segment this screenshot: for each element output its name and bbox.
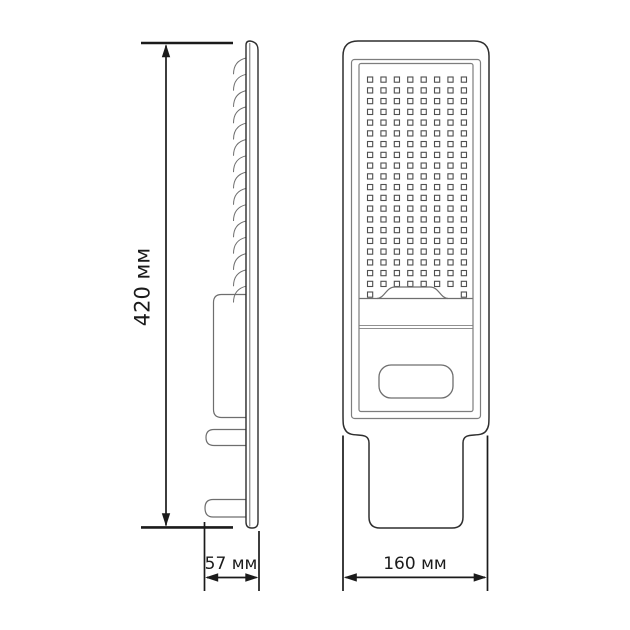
technical-drawing-page: 420 мм 57 мм 160 мм xyxy=(0,0,630,630)
dimension-label-height: 420 мм xyxy=(131,248,155,326)
led-square xyxy=(408,120,413,125)
led-square xyxy=(448,88,453,93)
led-square xyxy=(368,99,373,104)
led-square xyxy=(448,77,453,82)
heatsink-fin xyxy=(234,270,247,286)
led-square xyxy=(381,88,386,93)
led-square xyxy=(408,238,413,243)
led-square xyxy=(408,99,413,104)
heatsink-fin xyxy=(234,107,247,123)
led-square xyxy=(421,195,426,200)
arrowhead-down xyxy=(162,513,170,526)
led-square xyxy=(435,185,440,190)
led-square xyxy=(448,228,453,233)
led-square xyxy=(421,77,426,82)
led-square xyxy=(448,120,453,125)
led-square xyxy=(368,142,373,147)
led-square xyxy=(461,217,466,222)
led-square xyxy=(408,142,413,147)
led-square xyxy=(368,174,373,179)
led-square xyxy=(368,152,373,157)
led-square xyxy=(394,206,399,211)
led-square xyxy=(435,228,440,233)
led-square xyxy=(394,142,399,147)
led-square xyxy=(381,206,386,211)
led-square xyxy=(448,206,453,211)
led-square xyxy=(421,152,426,157)
led-square xyxy=(394,131,399,136)
heatsink-fin xyxy=(234,172,247,188)
led-square xyxy=(421,163,426,168)
led-square xyxy=(461,152,466,157)
heatsink-fin xyxy=(234,74,247,90)
led-square xyxy=(421,174,426,179)
led-square xyxy=(408,217,413,222)
led-square xyxy=(435,217,440,222)
led-square xyxy=(461,99,466,104)
led-square xyxy=(381,174,386,179)
led-square xyxy=(435,195,440,200)
led-square xyxy=(435,249,440,254)
led-square xyxy=(394,249,399,254)
led-square xyxy=(381,120,386,125)
heatsink-fin xyxy=(234,91,247,107)
technical-drawing-svg: 420 мм 57 мм 160 мм xyxy=(0,0,630,630)
led-square xyxy=(461,228,466,233)
led-square xyxy=(394,217,399,222)
led-square xyxy=(381,152,386,157)
led-square xyxy=(461,271,466,276)
led-square xyxy=(461,249,466,254)
led-square xyxy=(368,163,373,168)
led-square xyxy=(461,238,466,243)
led-square xyxy=(461,131,466,136)
led-square xyxy=(435,163,440,168)
led-square xyxy=(461,120,466,125)
heatsink-fin xyxy=(234,237,247,253)
led-square xyxy=(461,77,466,82)
led-square xyxy=(421,228,426,233)
led-square xyxy=(421,281,426,286)
led-square xyxy=(368,195,373,200)
led-square xyxy=(368,217,373,222)
led-square xyxy=(461,292,466,297)
led-square xyxy=(435,109,440,114)
led-square xyxy=(448,271,453,276)
led-square xyxy=(368,109,373,114)
led-square xyxy=(408,109,413,114)
side-clamp-tab-upper xyxy=(206,430,246,446)
led-square xyxy=(435,152,440,157)
led-square xyxy=(368,185,373,190)
dimension-label-side-width: 57 мм xyxy=(205,554,258,574)
led-square xyxy=(448,260,453,265)
led-square xyxy=(394,195,399,200)
led-square xyxy=(421,99,426,104)
led-square xyxy=(408,249,413,254)
led-square xyxy=(408,185,413,190)
dimension-side-width-57: 57 мм xyxy=(205,522,260,591)
led-square xyxy=(408,271,413,276)
side-body-profile xyxy=(246,41,258,528)
led-square xyxy=(368,228,373,233)
led-square xyxy=(368,88,373,93)
led-square xyxy=(461,174,466,179)
side-view xyxy=(205,41,258,528)
led-square xyxy=(461,142,466,147)
led-square xyxy=(381,163,386,168)
led-square xyxy=(421,142,426,147)
led-square xyxy=(368,77,373,82)
front-housing-outline xyxy=(343,41,489,528)
led-square xyxy=(394,281,399,286)
led-square xyxy=(381,249,386,254)
arrowhead-left xyxy=(344,573,357,581)
led-square xyxy=(448,238,453,243)
led-square xyxy=(381,131,386,136)
led-square xyxy=(381,195,386,200)
led-square xyxy=(461,109,466,114)
led-square xyxy=(461,281,466,286)
led-square xyxy=(408,77,413,82)
led-square xyxy=(394,77,399,82)
heatsink-fin xyxy=(234,123,247,139)
led-square xyxy=(435,99,440,104)
led-square xyxy=(421,238,426,243)
led-square xyxy=(381,217,386,222)
led-square xyxy=(448,142,453,147)
heatsink-fin xyxy=(234,188,247,204)
led-square xyxy=(421,131,426,136)
led-square xyxy=(394,174,399,179)
led-square xyxy=(421,88,426,93)
led-square xyxy=(448,152,453,157)
led-square xyxy=(368,281,373,286)
led-square xyxy=(448,249,453,254)
heatsink-fin xyxy=(234,58,247,74)
led-square xyxy=(408,206,413,211)
led-square xyxy=(408,174,413,179)
led-square xyxy=(394,228,399,233)
arrowhead-up xyxy=(162,44,170,57)
led-square xyxy=(394,185,399,190)
led-square xyxy=(435,271,440,276)
led-square xyxy=(435,120,440,125)
led-square xyxy=(394,99,399,104)
led-square xyxy=(448,217,453,222)
led-square xyxy=(368,260,373,265)
led-square xyxy=(421,206,426,211)
heatsink-fins xyxy=(234,58,247,303)
heatsink-fin xyxy=(234,156,247,172)
arrowhead-left xyxy=(205,573,218,581)
led-square xyxy=(408,260,413,265)
dimension-label-front-width: 160 мм xyxy=(383,554,447,574)
led-square xyxy=(421,120,426,125)
led-square xyxy=(394,260,399,265)
led-square xyxy=(381,228,386,233)
led-square xyxy=(394,238,399,243)
led-square xyxy=(448,174,453,179)
led-square xyxy=(408,131,413,136)
led-square xyxy=(421,217,426,222)
led-square xyxy=(381,77,386,82)
led-square xyxy=(381,99,386,104)
led-square xyxy=(394,88,399,93)
led-square xyxy=(408,195,413,200)
led-square xyxy=(435,142,440,147)
led-square xyxy=(448,131,453,136)
led-square xyxy=(435,260,440,265)
led-square xyxy=(368,120,373,125)
led-square xyxy=(394,120,399,125)
led-square xyxy=(381,109,386,114)
led-square xyxy=(394,271,399,276)
front-view xyxy=(343,41,489,528)
arrowhead-right xyxy=(474,573,487,581)
led-square xyxy=(368,206,373,211)
led-square xyxy=(394,109,399,114)
led-square xyxy=(381,281,386,286)
heatsink-fin xyxy=(234,221,247,237)
led-square xyxy=(368,249,373,254)
dimension-height-420: 420 мм xyxy=(131,43,234,527)
led-square xyxy=(435,174,440,179)
led-square xyxy=(448,163,453,168)
led-square xyxy=(394,152,399,157)
led-square xyxy=(421,249,426,254)
led-square xyxy=(368,131,373,136)
led-square xyxy=(448,281,453,286)
led-square xyxy=(381,185,386,190)
led-square xyxy=(421,185,426,190)
led-square xyxy=(461,206,466,211)
led-square xyxy=(368,271,373,276)
led-square xyxy=(381,142,386,147)
led-square xyxy=(461,88,466,93)
led-square xyxy=(408,152,413,157)
side-bracket-plate xyxy=(214,295,247,418)
led-square xyxy=(408,228,413,233)
arrowhead-right xyxy=(245,573,258,581)
led-square xyxy=(368,292,373,297)
heatsink-fin xyxy=(234,205,247,221)
led-square xyxy=(408,163,413,168)
led-square xyxy=(381,260,386,265)
led-square xyxy=(435,238,440,243)
led-square xyxy=(461,163,466,168)
heatsink-fin xyxy=(234,254,247,270)
led-square xyxy=(421,271,426,276)
led-square xyxy=(448,195,453,200)
led-square xyxy=(408,281,413,286)
led-square xyxy=(435,281,440,286)
led-square xyxy=(461,185,466,190)
led-square xyxy=(448,99,453,104)
led-square xyxy=(435,77,440,82)
led-square xyxy=(448,109,453,114)
led-square xyxy=(368,238,373,243)
led-square xyxy=(421,109,426,114)
led-square xyxy=(381,238,386,243)
led-square xyxy=(461,195,466,200)
led-square xyxy=(381,271,386,276)
led-square xyxy=(408,88,413,93)
led-square xyxy=(448,185,453,190)
led-square xyxy=(461,260,466,265)
led-square xyxy=(421,260,426,265)
led-square xyxy=(435,206,440,211)
led-square xyxy=(435,88,440,93)
led-square xyxy=(394,163,399,168)
heatsink-fin xyxy=(234,140,247,156)
led-square xyxy=(435,131,440,136)
side-clamp-tab-lower xyxy=(205,500,246,518)
driver-window xyxy=(379,365,453,398)
